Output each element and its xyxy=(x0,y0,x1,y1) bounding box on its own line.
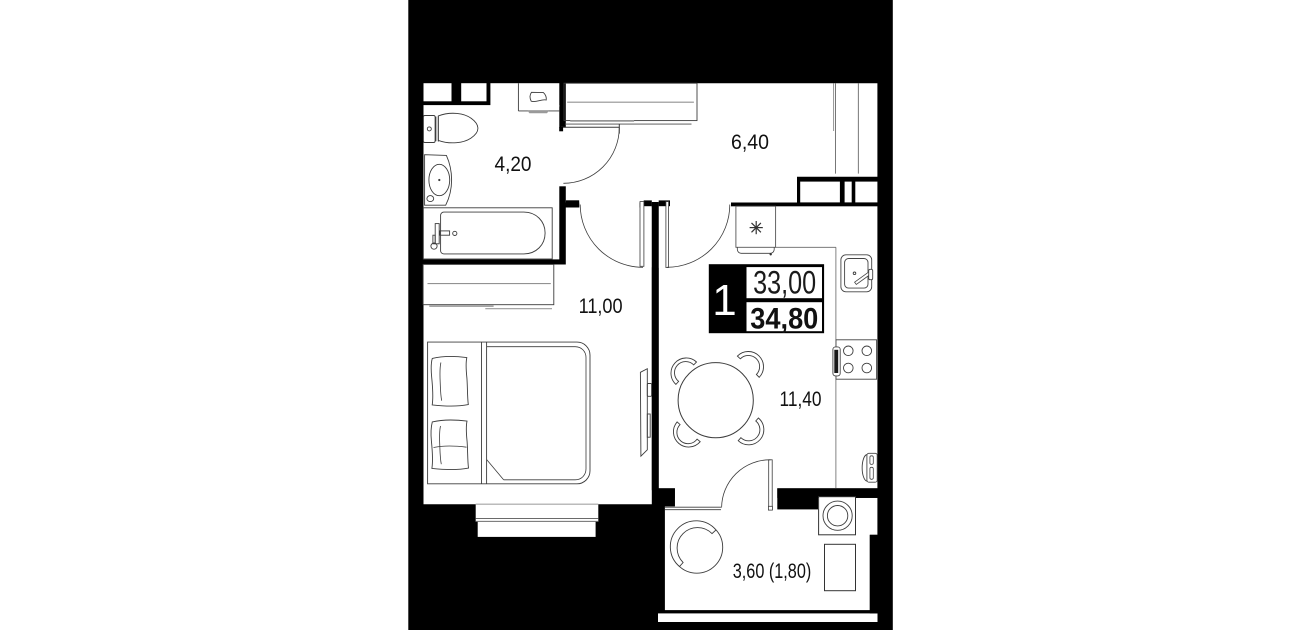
svg-text:11,40: 11,40 xyxy=(780,387,822,411)
svg-text:4,20: 4,20 xyxy=(495,152,532,176)
svg-text:33,00: 33,00 xyxy=(753,265,816,301)
svg-text:34,80: 34,80 xyxy=(750,302,818,335)
svg-text:6,40: 6,40 xyxy=(731,130,769,154)
svg-text:1: 1 xyxy=(712,276,736,325)
svg-text:11,00: 11,00 xyxy=(579,294,623,318)
svg-text:3,60 (1,80): 3,60 (1,80) xyxy=(733,559,812,583)
